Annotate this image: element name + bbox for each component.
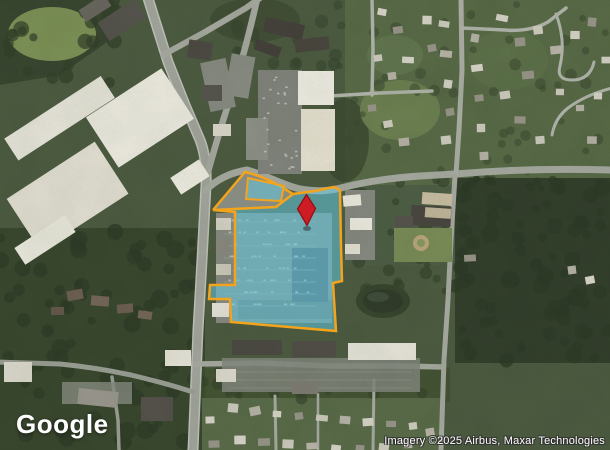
map-canvas[interactable] bbox=[0, 0, 610, 450]
marker-shadow bbox=[303, 226, 311, 231]
satellite-map-view[interactable]: Google Imagery ©2025 Airbus, Maxar Techn… bbox=[0, 0, 610, 450]
google-logo[interactable]: Google bbox=[16, 409, 109, 440]
imagery-attribution: Imagery ©2025 Airbus, Maxar Technologies bbox=[384, 435, 605, 447]
